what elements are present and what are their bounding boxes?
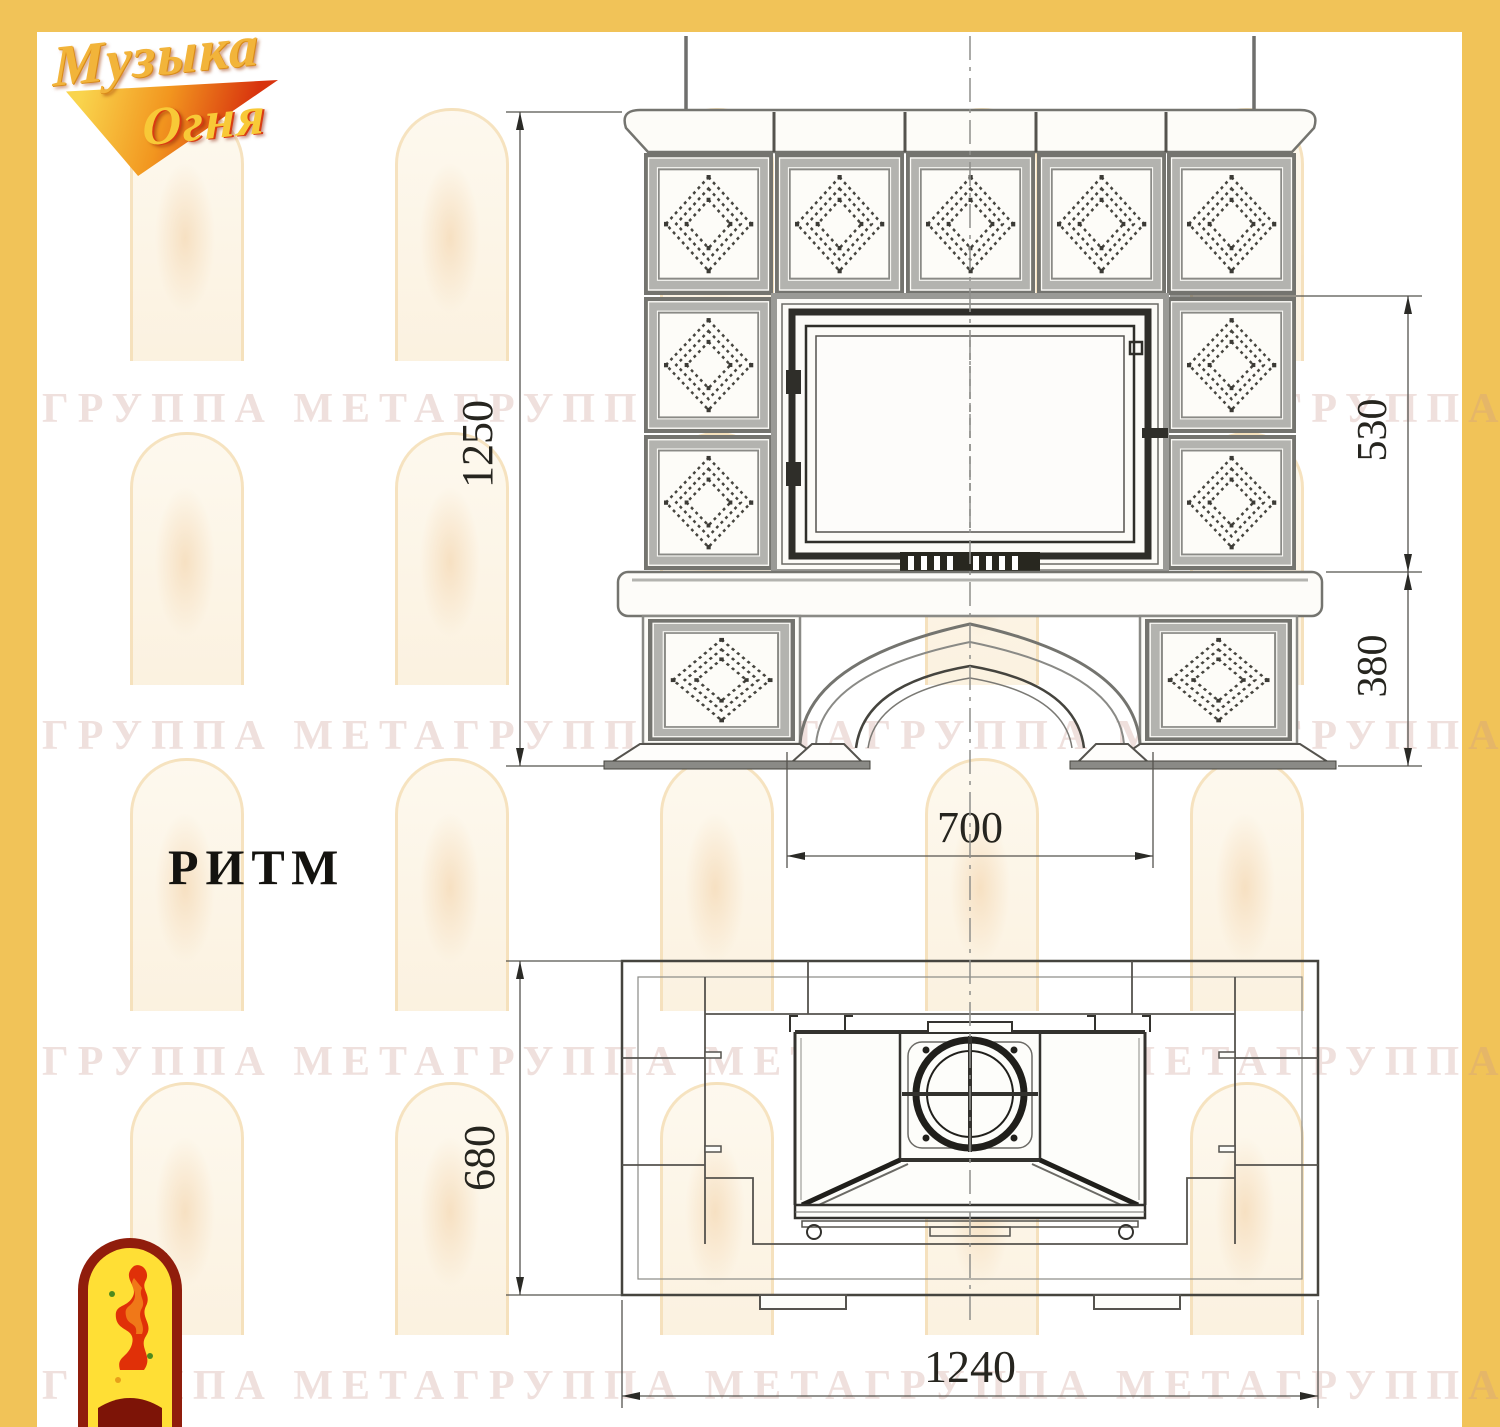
logo-text-line2: Огня <box>142 83 266 158</box>
model-name-label: РИТМ <box>168 838 345 896</box>
door-hinge-bottom <box>786 462 801 486</box>
brand-logo: Музыка Огня <box>30 14 330 174</box>
front-view-drawing: 1250 530 380 700 <box>453 36 1422 868</box>
page: { "brand": {"line1": "Музыка", "line2": … <box>0 0 1500 1427</box>
door-hinge-top <box>786 370 801 394</box>
brand-emblem <box>78 1238 182 1427</box>
dim-base-height-label: 380 <box>1350 635 1396 698</box>
dim-plan-depth <box>506 961 622 1295</box>
technical-drawing: 1250 530 380 700 <box>0 0 1500 1427</box>
dim-front-height <box>506 112 622 766</box>
flame-figure-icon <box>88 1248 172 1427</box>
plan-view-drawing: 680 1240 <box>455 961 1318 1408</box>
plan-foot-tab-right <box>1094 1295 1180 1309</box>
dim-plan-width-label: 1240 <box>924 1341 1016 1392</box>
door-handle <box>1142 428 1168 438</box>
firebox-door <box>786 312 1168 556</box>
dim-firebox-height-label: 530 <box>1350 399 1396 462</box>
dim-plan-depth-label: 680 <box>455 1125 504 1191</box>
dim-front-height-label: 1250 <box>453 400 502 488</box>
plan-foot-tab-left <box>760 1295 846 1309</box>
